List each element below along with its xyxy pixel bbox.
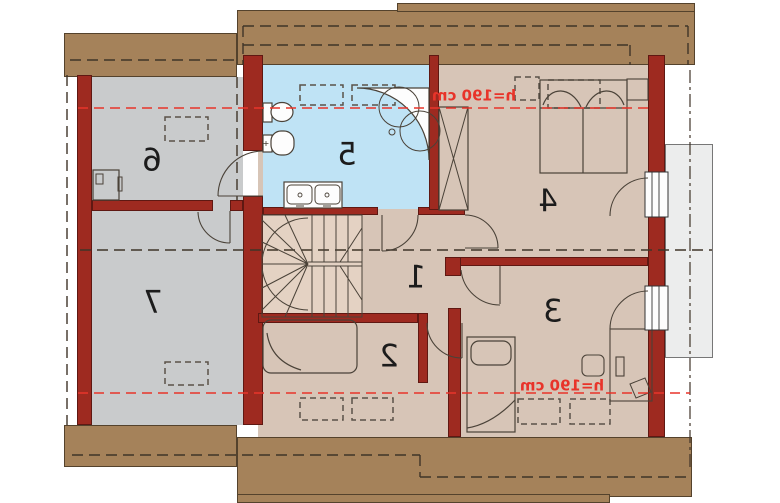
- roof-band-top-main: [237, 10, 695, 65]
- room-label-4: 4: [538, 187, 558, 218]
- room-label-7: 7: [143, 288, 163, 319]
- height-label-top: h=190 cm: [432, 89, 516, 104]
- wall-bathroom-south-east: [418, 207, 465, 215]
- room-label-1: 1: [406, 263, 426, 294]
- wall-center-upper: [243, 55, 263, 151]
- room-label-3: 3: [543, 297, 563, 328]
- wall-bathroom-south: [263, 207, 378, 215]
- floor-plan-canvas: 1 2 3 4 5 6 7 h=190 cm h=190 cm: [0, 0, 780, 503]
- wall-bathroom-room4: [429, 55, 439, 210]
- wall-hall-stub: [445, 257, 461, 276]
- wall-room2-room3-divider: [448, 308, 461, 437]
- balcony-area: [665, 144, 713, 358]
- room-label-6: 6: [142, 146, 162, 177]
- wall-left-outer: [77, 75, 92, 425]
- wall-center-lower: [243, 196, 263, 425]
- wall-right-outer: [648, 55, 665, 437]
- staircase-floor: [262, 215, 362, 317]
- room-6-7-floor: [92, 77, 243, 425]
- wall-room6-7-divider: [92, 200, 213, 211]
- roof-band-bottom-main: [237, 437, 692, 497]
- wall-hall-room2: [418, 313, 428, 383]
- roof-band-top-step: [397, 3, 695, 12]
- roof-band-bottom-left: [64, 425, 237, 467]
- wall-room3-north: [445, 257, 648, 266]
- wall-stairs-south: [258, 313, 418, 323]
- roof-band-bottom-step: [237, 494, 610, 503]
- room-label-2: 2: [379, 342, 399, 373]
- height-label-bottom: h=190 cm: [520, 379, 604, 394]
- roof-band-top-left: [64, 33, 237, 77]
- room-label-5: 5: [337, 140, 357, 171]
- wall-room7-door-stub: [230, 200, 243, 211]
